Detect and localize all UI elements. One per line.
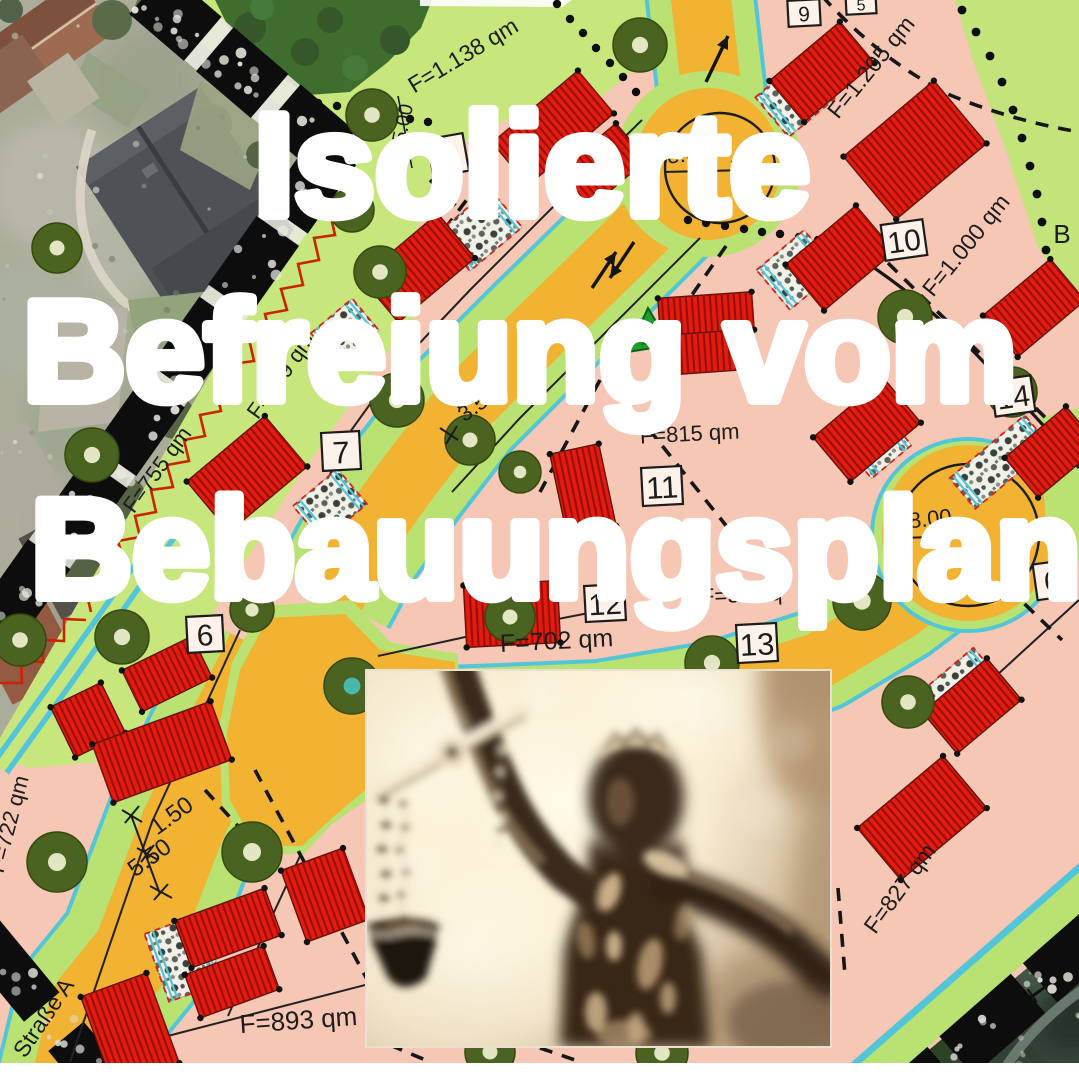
svg-text:Befreiung vom: Befreiung vom bbox=[23, 272, 1017, 431]
svg-text:B: B bbox=[1053, 219, 1070, 249]
svg-text:9: 9 bbox=[798, 3, 811, 27]
svg-text:Isolierte: Isolierte bbox=[254, 84, 810, 246]
svg-text:7: 7 bbox=[332, 435, 351, 471]
svg-text:Bebauungsplan: Bebauungsplan bbox=[31, 470, 1079, 627]
svg-text:F=702 qm: F=702 qm bbox=[499, 624, 614, 658]
svg-text:5: 5 bbox=[856, 0, 866, 15]
svg-text:13: 13 bbox=[739, 626, 775, 663]
svg-text:10: 10 bbox=[885, 223, 923, 260]
